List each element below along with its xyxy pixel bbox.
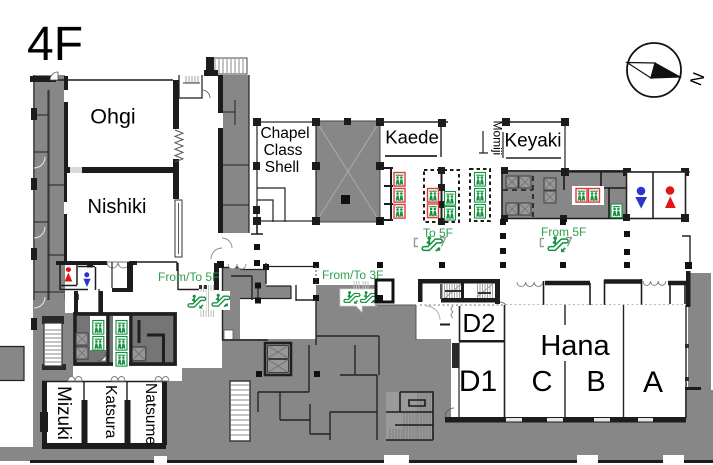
svg-text:B: B xyxy=(586,366,605,398)
svg-text:From/To 3F: From/To 3F xyxy=(322,268,383,282)
svg-text:Keyaki: Keyaki xyxy=(504,131,561,152)
svg-text:4F: 4F xyxy=(27,18,83,71)
svg-text:Shell: Shell xyxy=(265,159,299,176)
svg-text:Natsume: Natsume xyxy=(142,383,159,445)
svg-text:Class: Class xyxy=(264,142,303,159)
svg-text:Mizuki: Mizuki xyxy=(53,386,74,440)
svg-text:Nishiki: Nishiki xyxy=(88,196,147,218)
svg-text:Katsura: Katsura xyxy=(102,385,119,439)
svg-text:From/To 5F: From/To 5F xyxy=(158,270,219,284)
svg-text:C: C xyxy=(532,366,553,398)
svg-text:Ohgi: Ohgi xyxy=(90,105,135,129)
svg-text:Kaede: Kaede xyxy=(385,127,439,148)
svg-text:Hana: Hana xyxy=(540,330,610,362)
svg-text:D2: D2 xyxy=(462,308,495,338)
svg-text:D1: D1 xyxy=(459,365,497,398)
svg-text:From 5F: From 5F xyxy=(541,225,586,239)
svg-text:A: A xyxy=(643,366,663,399)
svg-text:Chapel: Chapel xyxy=(260,125,309,142)
